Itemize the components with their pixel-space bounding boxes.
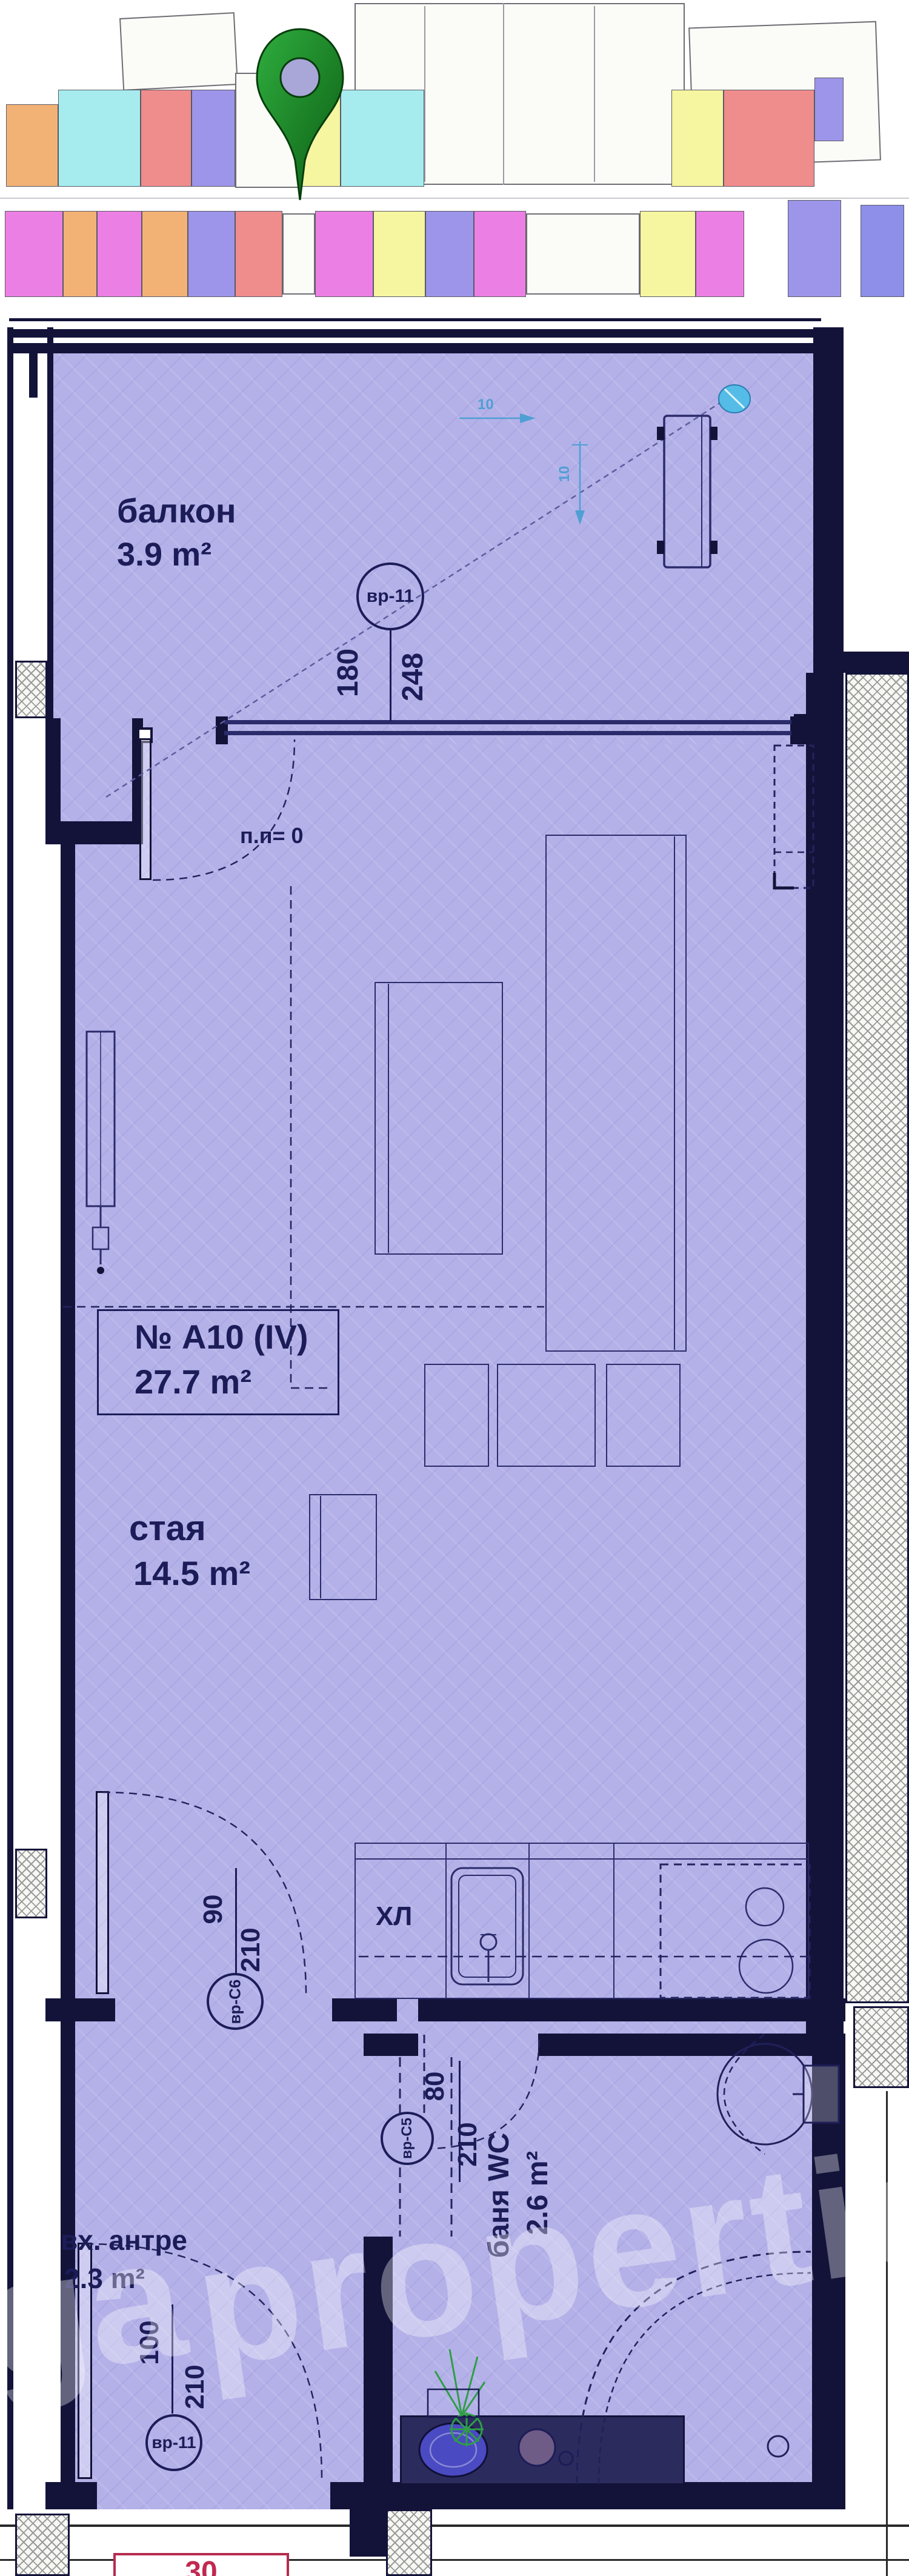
minimap-unit xyxy=(861,205,904,297)
interior-wall xyxy=(332,1998,397,2021)
outer-wall-bottom xyxy=(45,2482,97,2509)
slope-label: 10 xyxy=(478,398,494,412)
entry-door-dim-height: 210 xyxy=(182,2364,208,2409)
bath-door-dim-height: 210 xyxy=(454,2122,481,2166)
minimap-unit xyxy=(315,211,373,297)
bath-door-tag: вр-С5 xyxy=(381,2112,434,2165)
entry-door-dim-width: 100 xyxy=(136,2320,163,2364)
room-area: 14.5 m² xyxy=(133,1557,250,1590)
outer-insulation-hatched xyxy=(845,673,909,2003)
corridor-line xyxy=(0,2524,909,2527)
sofa-section xyxy=(606,1364,681,1467)
room-wall-right xyxy=(806,673,844,2037)
minimap-unit xyxy=(188,211,235,297)
dim-stem xyxy=(171,2304,173,2414)
apartment-number: № А10 (IV) xyxy=(135,1320,308,1354)
minimap-unit xyxy=(696,211,744,297)
room-door-dim-width: 90 xyxy=(200,1895,227,1924)
minimap-unit xyxy=(341,90,424,187)
interior-wall xyxy=(418,1998,845,2021)
side-table-inner-line xyxy=(320,1496,321,1598)
kitchen-counter-divider xyxy=(528,1844,530,1998)
window-sill-floor xyxy=(216,714,802,744)
minimap-unit xyxy=(97,211,142,297)
building-outline-line xyxy=(503,3,504,185)
desk-inner-line xyxy=(388,984,389,1253)
bath-door-dim-width: 80 xyxy=(422,2072,448,2101)
minimap-unit xyxy=(724,90,814,187)
wall-step-right xyxy=(813,652,909,673)
corridor-edge-line xyxy=(886,2091,888,2576)
bath-label: баня WC xyxy=(485,2133,514,2258)
balcony-parapet xyxy=(9,329,821,338)
wall-pier-hatched xyxy=(15,1849,47,1918)
balcony-parapet xyxy=(9,343,821,353)
minimap-unit xyxy=(58,90,141,187)
apartment-area: 27.7 m² xyxy=(135,1365,251,1399)
minimap-unit xyxy=(640,211,696,297)
balcony-area: 3.9 m² xyxy=(117,538,211,571)
kitchen-counter-divider xyxy=(445,1844,447,1998)
sofa-section xyxy=(424,1364,489,1467)
balcony-wall-left-inner xyxy=(47,327,53,718)
kitchen-counter xyxy=(355,1843,809,1999)
minimap-unit xyxy=(141,90,191,187)
wardrobe-bed xyxy=(545,835,687,1352)
window-glazing xyxy=(224,720,791,724)
window-wall-stub-right xyxy=(794,714,844,744)
room-door-tag-label: вр-С6 xyxy=(225,1979,244,2024)
balcony-door-leaf xyxy=(139,738,151,880)
minimap-unit xyxy=(63,211,97,297)
apartment-floorplan: балкон 3.9 m² п.п= 0 № А10 (IV) 27.7 m² … xyxy=(0,309,909,2576)
outer-wall-bottom xyxy=(330,2482,845,2509)
minimap-unit xyxy=(191,90,235,187)
room-label: стая xyxy=(129,1511,206,1546)
level-note: п.п= 0 xyxy=(240,825,304,847)
building-overview-map xyxy=(0,0,909,303)
slope-label: 10 xyxy=(558,466,572,482)
balcony-parapet xyxy=(9,318,821,321)
room-door-tag: вр-С6 xyxy=(207,1973,264,2030)
minimap-unit xyxy=(302,90,341,187)
minimap-unit xyxy=(788,200,841,297)
entry-area: 2.3 m² xyxy=(64,2264,145,2292)
minimap-unit xyxy=(671,90,724,187)
minimap-unit xyxy=(142,211,188,297)
building-outline-line xyxy=(424,6,425,182)
bath-area: 2.6 m² xyxy=(524,2151,553,2235)
entry-label: вх. антре xyxy=(61,2226,187,2254)
minimap-unit-outlined xyxy=(235,73,302,188)
minimap-unit-outlined xyxy=(526,213,640,295)
window-glazing xyxy=(224,731,791,735)
antre-bath-wall xyxy=(364,2237,393,2485)
window-dim-height: 248 xyxy=(399,653,428,701)
minimap-unit xyxy=(6,104,58,187)
desk xyxy=(375,982,503,1255)
fridge-label: ХЛ xyxy=(376,1903,412,1930)
interior-wall xyxy=(45,1998,115,2021)
unit-number: 30 xyxy=(185,2558,217,2576)
window-dim-width: 180 xyxy=(334,649,363,697)
wall-stub xyxy=(29,343,38,398)
kitchen-counter-edge xyxy=(356,1858,808,1860)
minimap-unit-outlined xyxy=(282,213,315,295)
unit-number-badge: 30 xyxy=(113,2553,289,2576)
minimap-unit xyxy=(425,211,474,297)
minimap-unit xyxy=(5,211,63,297)
wall-pier-hatched xyxy=(386,2509,432,2576)
entry-door-tag-label: вр-11 xyxy=(151,2433,196,2452)
vanity-counter xyxy=(400,2415,685,2485)
bed-inner-line xyxy=(674,836,675,1350)
minimap-road-line xyxy=(0,198,909,199)
minimap-road xyxy=(0,188,909,211)
entry-door-tag: вр-11 xyxy=(145,2414,202,2471)
minimap-unit xyxy=(373,211,425,297)
bathroom-top-wall xyxy=(364,2034,418,2056)
bath-door-tag-label: вр-С5 xyxy=(399,2118,416,2159)
outer-wall-left xyxy=(7,327,13,2509)
wall-pier-hatched xyxy=(853,2006,909,2088)
minimap-unit xyxy=(474,211,526,297)
wall-pier xyxy=(350,2509,386,2557)
window-tag: вр-11 xyxy=(356,562,424,630)
balcony-label: балкон xyxy=(117,494,236,528)
room-door-leaf xyxy=(96,1791,109,1994)
wall-pier-hatched xyxy=(15,661,47,718)
dim-stem xyxy=(390,630,391,721)
window-tag-label: вр-11 xyxy=(367,586,414,607)
balcony-wall-right xyxy=(813,327,844,652)
minimap-unit xyxy=(235,211,282,297)
sofa-section xyxy=(497,1364,596,1467)
bathroom-wall-right xyxy=(812,2037,845,2509)
building-outline-line xyxy=(594,6,595,182)
room-door-dim-height: 210 xyxy=(238,1927,264,1972)
wall-pier-hatched xyxy=(15,2514,70,2576)
bathroom-top-wall xyxy=(538,2034,845,2056)
minimap-unit xyxy=(814,78,844,141)
room-wall-left-upper xyxy=(45,718,61,843)
kitchen-counter-divider xyxy=(613,1844,614,1998)
building-outline xyxy=(119,12,238,91)
floorplan-page: балкон 3.9 m² п.п= 0 № А10 (IV) 27.7 m² … xyxy=(0,0,909,2576)
side-table xyxy=(309,1494,377,1600)
